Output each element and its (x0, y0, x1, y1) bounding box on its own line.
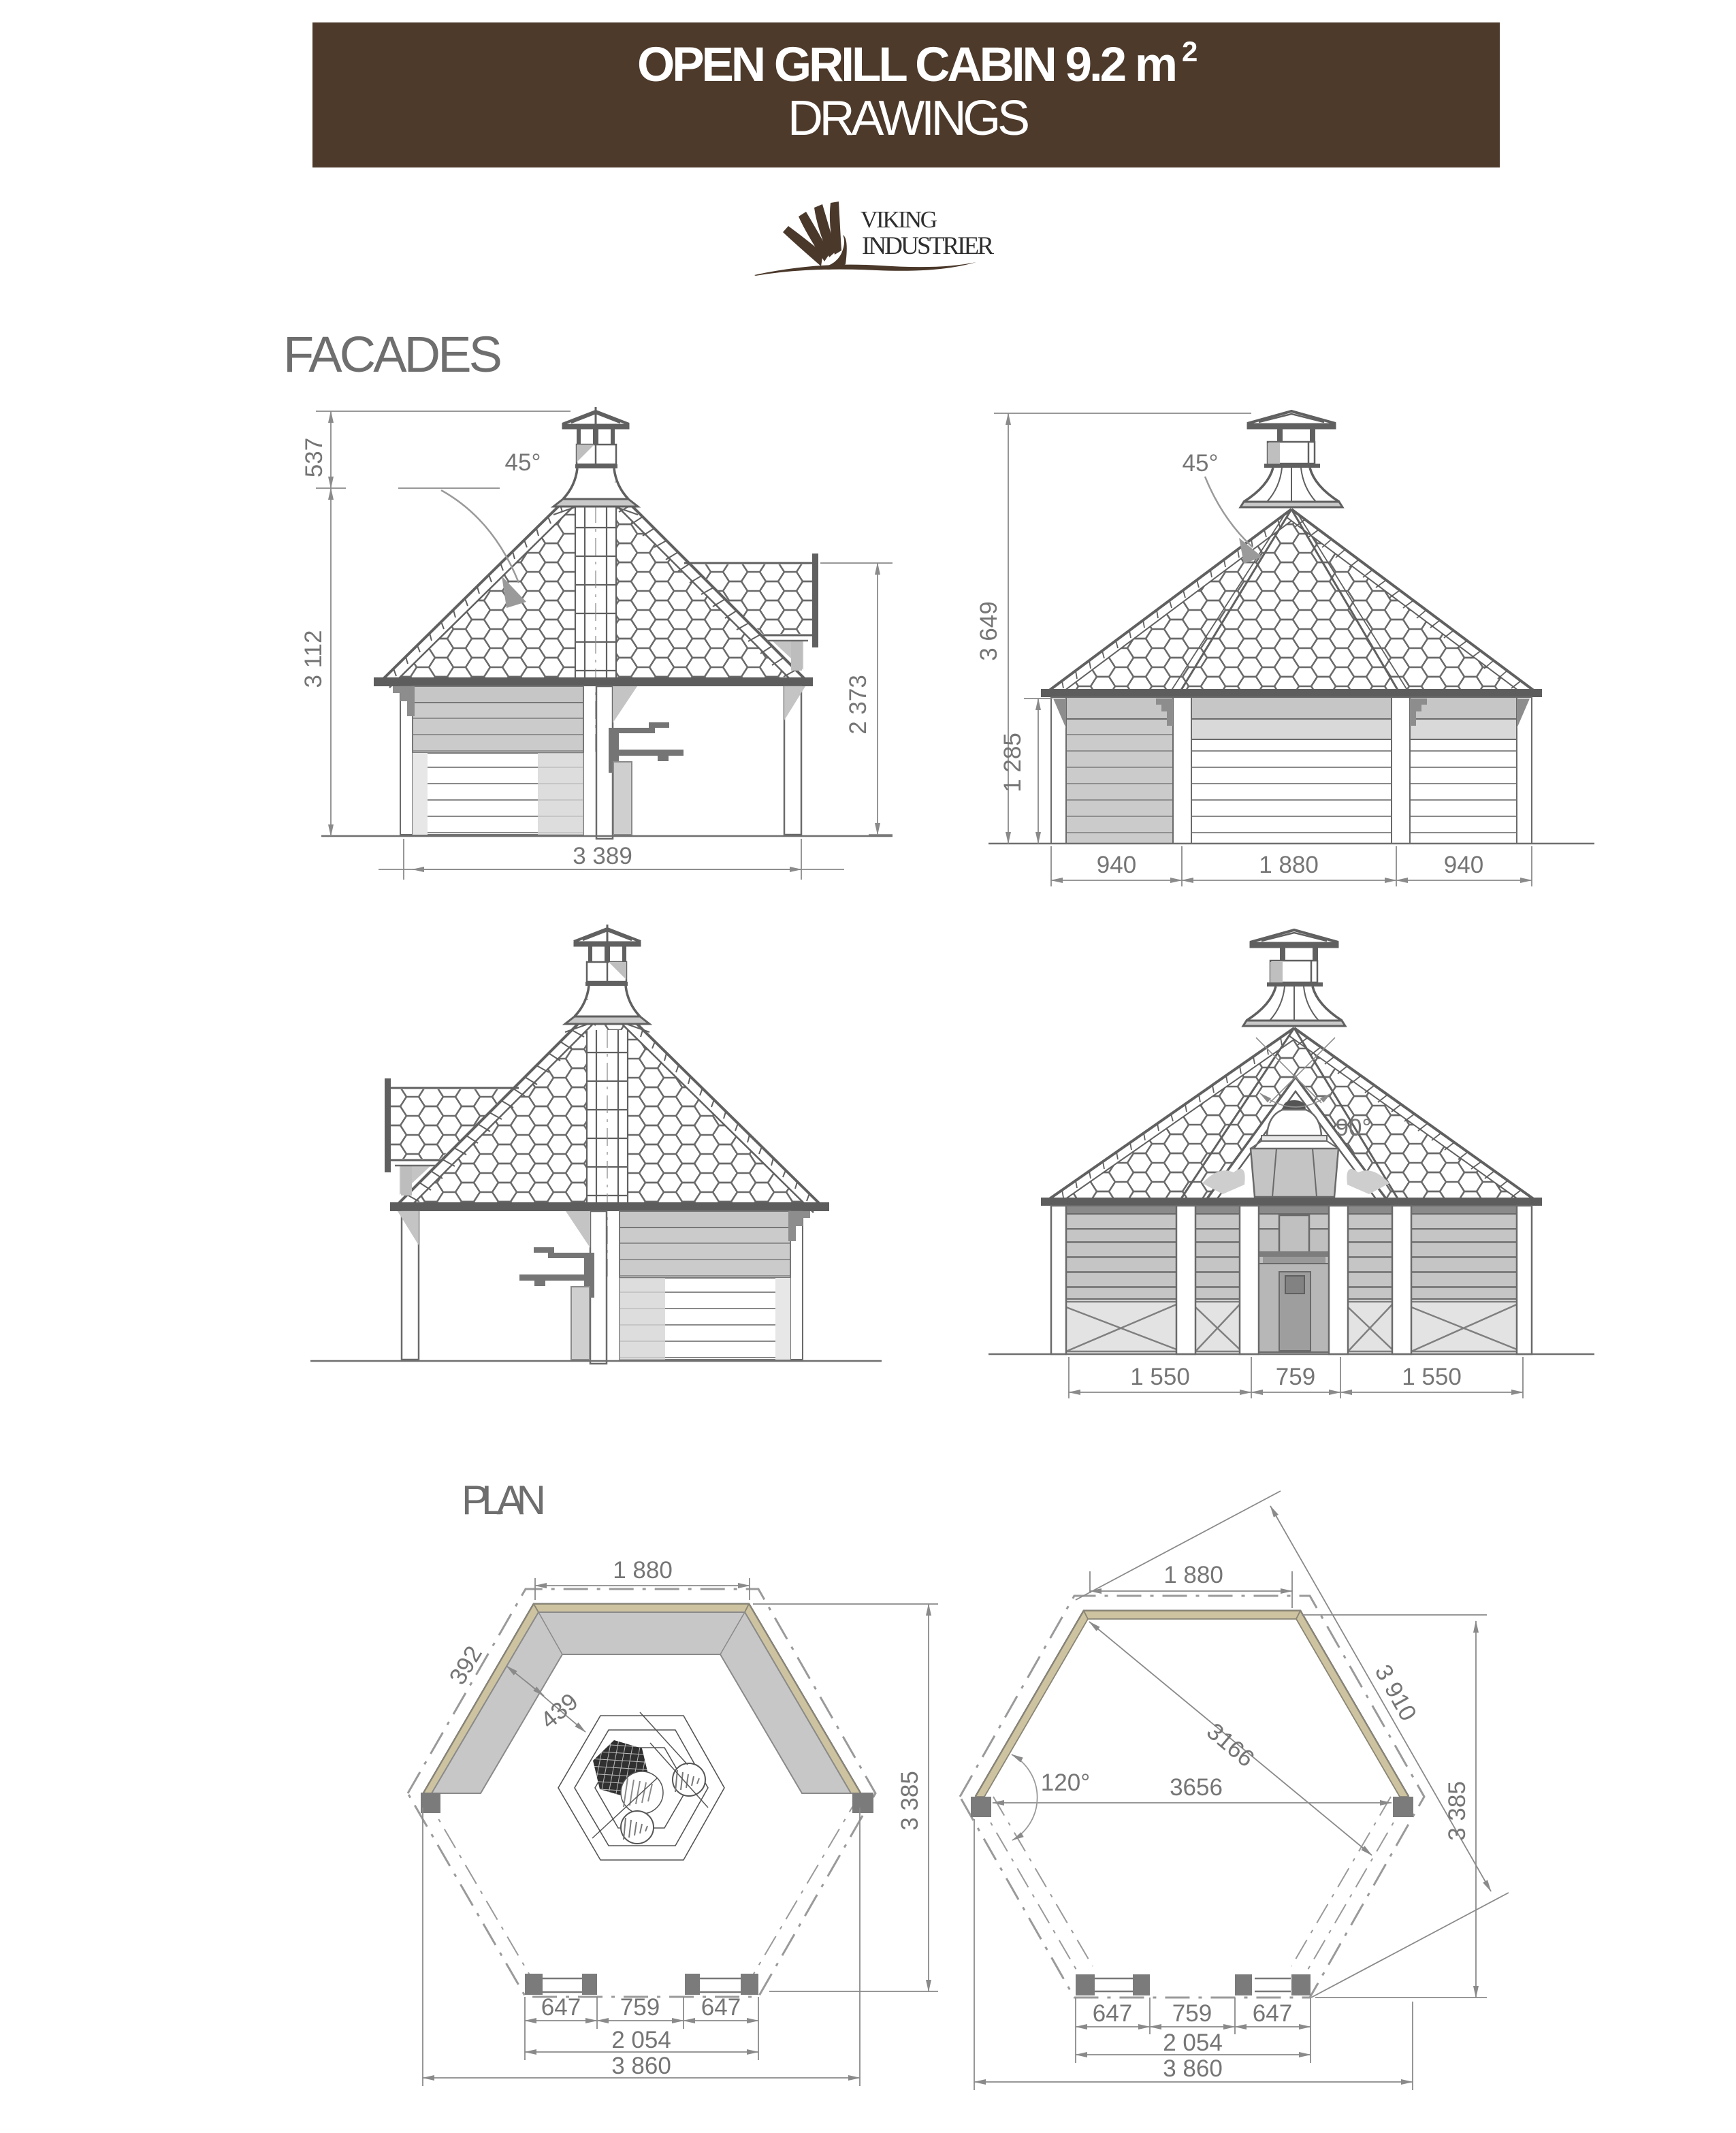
svg-text:FACADES: FACADES (283, 326, 502, 383)
svg-text:1 550: 1 550 (1130, 1364, 1190, 1390)
svg-text:1 880: 1 880 (613, 1557, 673, 1584)
svg-text:2 054: 2 054 (611, 2027, 671, 2053)
svg-text:759: 759 (620, 1994, 660, 2021)
svg-text:2: 2 (1182, 35, 1197, 67)
svg-text:45°: 45° (505, 449, 541, 476)
svg-text:3 860: 3 860 (1163, 2055, 1223, 2082)
svg-text:45°: 45° (1183, 450, 1219, 477)
svg-text:759: 759 (1172, 2000, 1212, 2027)
svg-text:3 385: 3 385 (1444, 1781, 1470, 1841)
svg-text:3 649: 3 649 (976, 601, 1002, 661)
svg-text:2 373: 2 373 (845, 675, 871, 735)
svg-text:2 054: 2 054 (1163, 2030, 1223, 2056)
svg-text:3 385: 3 385 (897, 1771, 923, 1831)
svg-text:537: 537 (301, 438, 327, 477)
svg-text:759: 759 (1276, 1364, 1315, 1390)
svg-text:647: 647 (1253, 2000, 1292, 2027)
svg-text:90°: 90° (1336, 1114, 1372, 1141)
svg-text:VIKING: VIKING (861, 206, 939, 233)
svg-text:3 389: 3 389 (573, 843, 632, 869)
svg-text:940: 940 (1444, 852, 1483, 878)
svg-text:1 550: 1 550 (1402, 1364, 1462, 1390)
svg-text:1 880: 1 880 (1259, 852, 1319, 878)
svg-text:1 880: 1 880 (1163, 1562, 1223, 1588)
svg-text:OPEN GRILL CABIN 9.2 m: OPEN GRILL CABIN 9.2 m (637, 38, 1178, 92)
svg-text:940: 940 (1097, 852, 1136, 878)
svg-text:647: 647 (541, 1994, 581, 2021)
svg-text:1 285: 1 285 (999, 733, 1026, 792)
svg-text:3656: 3656 (1170, 1774, 1223, 1801)
svg-text:3166: 3166 (1202, 1718, 1259, 1772)
svg-text:3 860: 3 860 (611, 2053, 671, 2079)
svg-text:3 112: 3 112 (300, 630, 327, 688)
svg-text:DRAWINGS: DRAWINGS (788, 91, 1030, 146)
svg-text:392: 392 (444, 1641, 487, 1689)
svg-text:PLAN: PLAN (462, 1477, 546, 1523)
svg-text:INDUSTRIER: INDUSTRIER (862, 232, 995, 260)
svg-text:120°: 120° (1041, 1769, 1090, 1796)
svg-text:647: 647 (701, 1994, 741, 2021)
svg-text:647: 647 (1093, 2000, 1132, 2027)
